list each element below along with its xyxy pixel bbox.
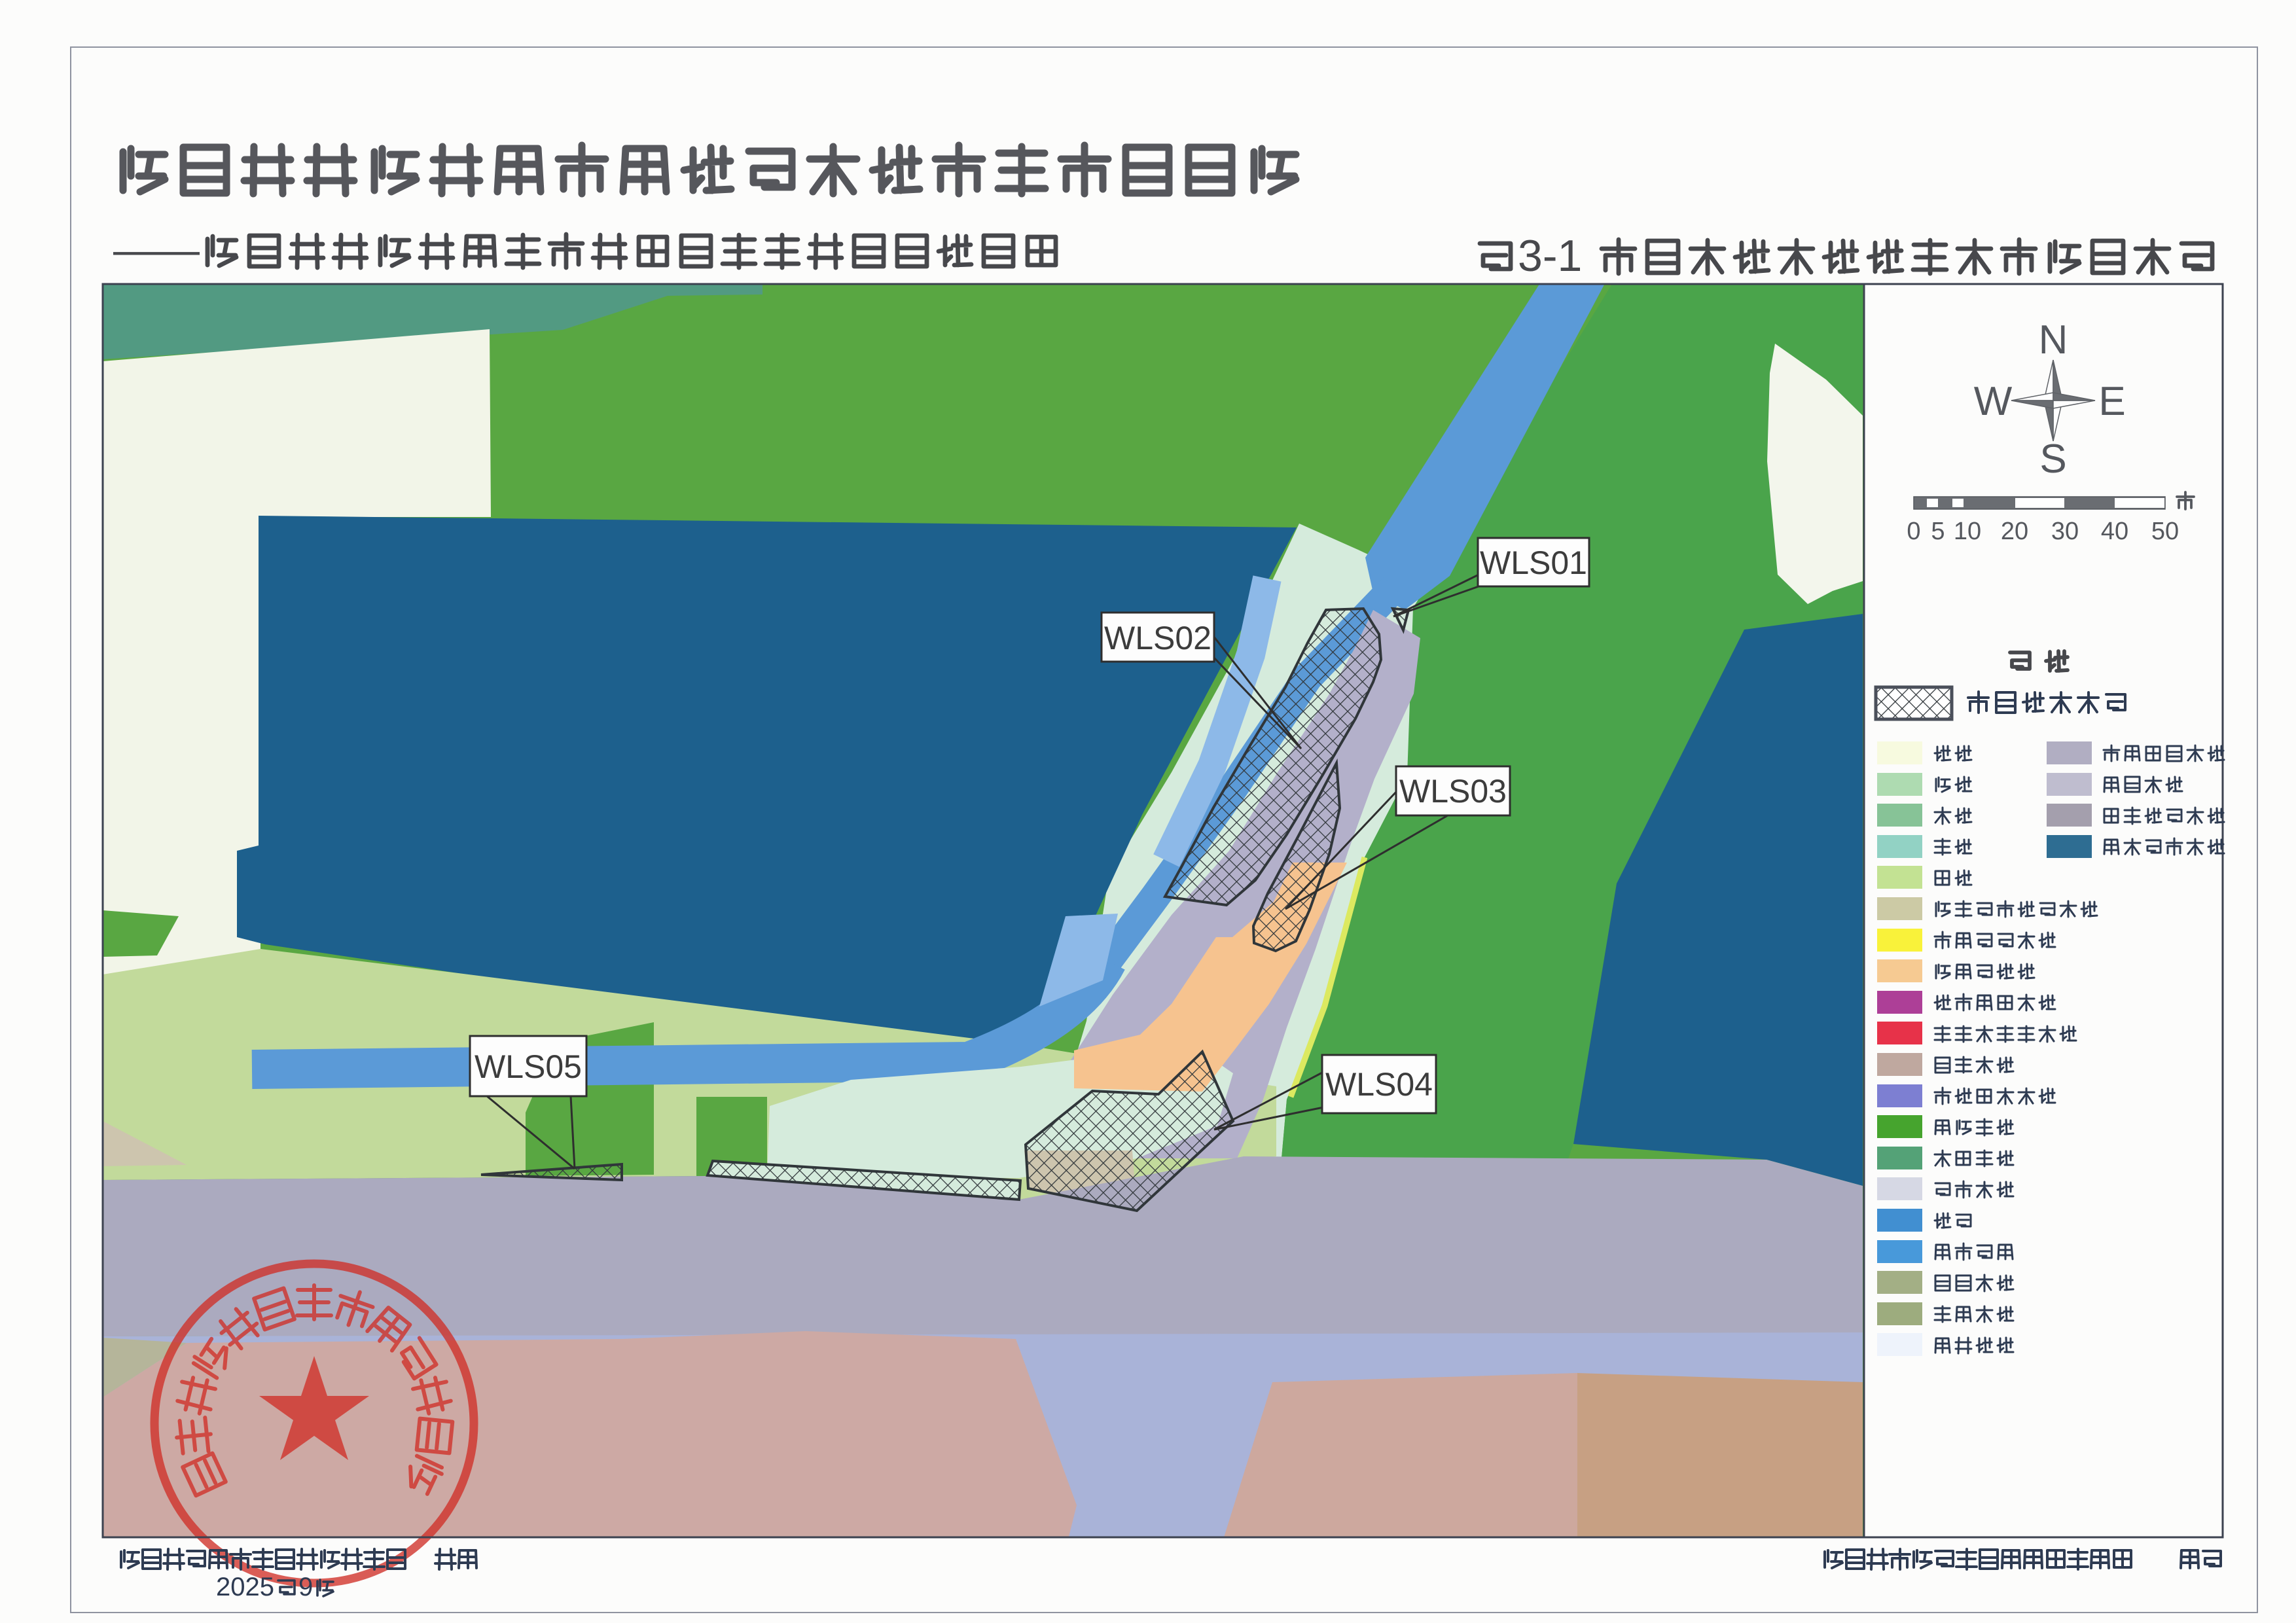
svg-text:50: 50 [2151, 518, 2179, 545]
svg-text:N: N [2039, 317, 2068, 363]
svg-text:WLS01: WLS01 [1480, 544, 1587, 581]
svg-text:E: E [2098, 379, 2125, 424]
svg-text:10: 10 [1954, 518, 1981, 545]
svg-text:WLS03: WLS03 [1399, 773, 1507, 810]
svg-text:W: W [1974, 379, 2013, 424]
svg-text:20: 20 [2001, 518, 2028, 545]
svg-text:WLS05: WLS05 [475, 1048, 582, 1085]
svg-text:WLS02: WLS02 [1104, 620, 1211, 656]
svg-text:40: 40 [2101, 518, 2128, 545]
svg-text:——: —— [113, 225, 200, 274]
svg-text:WLS04: WLS04 [1325, 1066, 1433, 1103]
svg-text:3-1: 3-1 [1518, 231, 1582, 281]
svg-text:0: 0 [1907, 518, 1920, 545]
svg-text:S: S [2039, 437, 2066, 482]
svg-text:2025: 2025 [216, 1573, 274, 1601]
svg-text:5: 5 [1931, 518, 1945, 545]
svg-text:30: 30 [2051, 518, 2079, 545]
svg-text:9: 9 [298, 1573, 313, 1601]
